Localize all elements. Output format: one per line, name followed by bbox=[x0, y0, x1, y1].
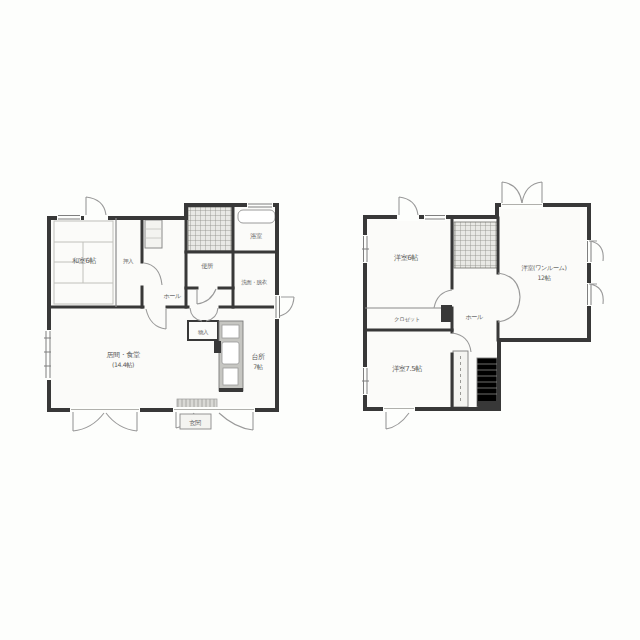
bathtub bbox=[238, 210, 275, 223]
wall-corner-block bbox=[441, 305, 452, 322]
room-label-storage-1f: 物入 bbox=[198, 329, 209, 336]
room-label-toilet: 便所 bbox=[201, 262, 214, 270]
genkan-step bbox=[177, 399, 217, 408]
room-label-kitchen-size: 7帖 bbox=[253, 363, 264, 371]
room-label-bedroom1: 洋室6帖 bbox=[394, 254, 418, 262]
room-label-mainroom: 洋室(ワンルーム) bbox=[521, 264, 566, 272]
room-label-hall-1f: ホール bbox=[163, 292, 182, 299]
room-label-kitchen: 台所 bbox=[251, 353, 265, 361]
room-label-washitsu: 和室6帖 bbox=[72, 257, 96, 265]
room-label-hall-2f: ホール bbox=[465, 313, 484, 320]
floorplan-2f: 洋室6帖 クロゼット 洋室7.5帖 ホール 洋室(ワンルーム) 12帖 bbox=[362, 182, 603, 429]
room-label-bath: 浴室 bbox=[249, 232, 262, 240]
room-label-closet: クロゼット bbox=[394, 316, 420, 322]
floorplan-drawing: 和室6帖 押入 ホール 浴室 便所 洗面・脱衣 居間・食堂 (14.4帖) 台所… bbox=[0, 0, 640, 640]
room-label-oshiire: 押入 bbox=[123, 258, 134, 264]
cabinet-1f bbox=[145, 220, 162, 248]
room-label-bedroom2: 洋室7.5帖 bbox=[392, 365, 422, 373]
room-label-living: 居間・食堂 bbox=[106, 351, 139, 359]
room-label-living-size: (14.4帖) bbox=[112, 361, 134, 369]
floorplan-page: 和室6帖 押入 ホール 浴室 便所 洗面・脱衣 居間・食堂 (14.4帖) 台所… bbox=[0, 0, 640, 640]
stairs-1f bbox=[188, 207, 232, 251]
room-label-washroom: 洗面・脱衣 bbox=[241, 279, 267, 286]
stairs-2f bbox=[454, 222, 498, 268]
floorplan-1f: 和室6帖 押入 ホール 浴室 便所 洗面・脱衣 居間・食堂 (14.4帖) 台所… bbox=[44, 197, 294, 431]
room-label-entrance: 玄関 bbox=[189, 419, 201, 426]
room-label-mainroom-size: 12帖 bbox=[538, 274, 552, 282]
